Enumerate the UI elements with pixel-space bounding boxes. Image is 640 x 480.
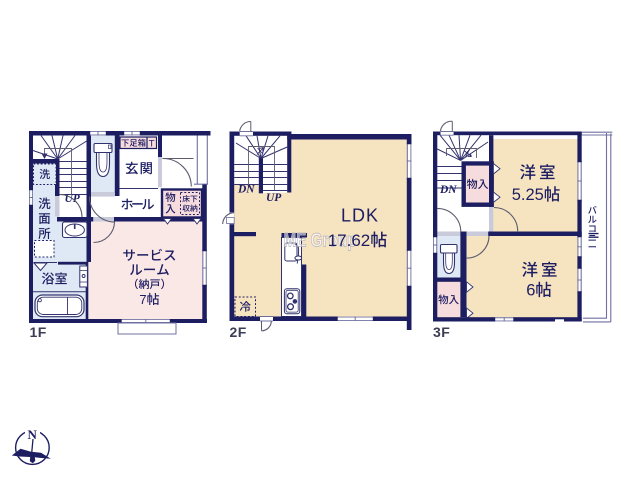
svg-text:DN: DN bbox=[439, 184, 457, 196]
svg-text:17.62: 17.62 bbox=[328, 231, 371, 250]
svg-text:5.25: 5.25 bbox=[512, 186, 544, 204]
svg-text:6: 6 bbox=[526, 282, 535, 300]
svg-text:T: T bbox=[149, 138, 155, 149]
svg-text:2F: 2F bbox=[230, 324, 247, 340]
svg-text:DN: DN bbox=[237, 184, 255, 196]
svg-text:LDK: LDK bbox=[341, 206, 379, 226]
svg-text:UP: UP bbox=[266, 192, 282, 204]
svg-text:1F: 1F bbox=[30, 324, 47, 340]
svg-text:7: 7 bbox=[139, 292, 146, 307]
svg-text:3F: 3F bbox=[433, 324, 450, 340]
